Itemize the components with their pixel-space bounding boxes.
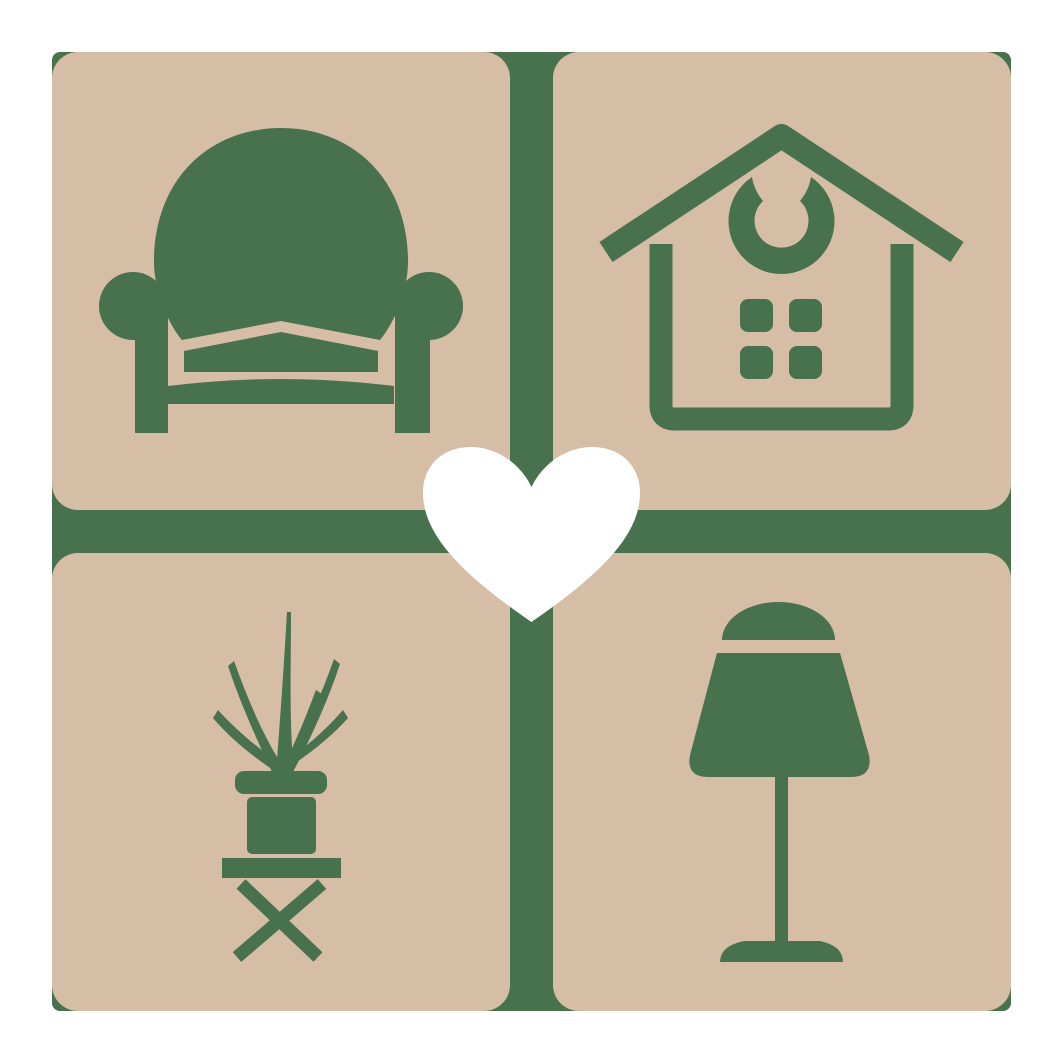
house-window-pane	[740, 299, 773, 332]
furniture-love-logo	[0, 0, 1063, 1063]
lamp-base	[720, 941, 843, 962]
house-window-pane	[789, 346, 822, 379]
tile-top-right	[553, 52, 1011, 510]
house-window-pane	[789, 299, 822, 332]
plant-pot-rim	[235, 771, 327, 794]
logo-canvas	[0, 0, 1063, 1063]
plant-stool-top	[222, 858, 341, 878]
chair-leg-right	[395, 302, 430, 433]
chair-crossbar	[168, 379, 394, 404]
house-window-pane	[740, 346, 773, 379]
plant-pot-body	[247, 797, 316, 854]
lamp-shade	[689, 653, 869, 777]
lamp-stem	[775, 777, 788, 943]
chair-leg-left	[135, 302, 168, 433]
